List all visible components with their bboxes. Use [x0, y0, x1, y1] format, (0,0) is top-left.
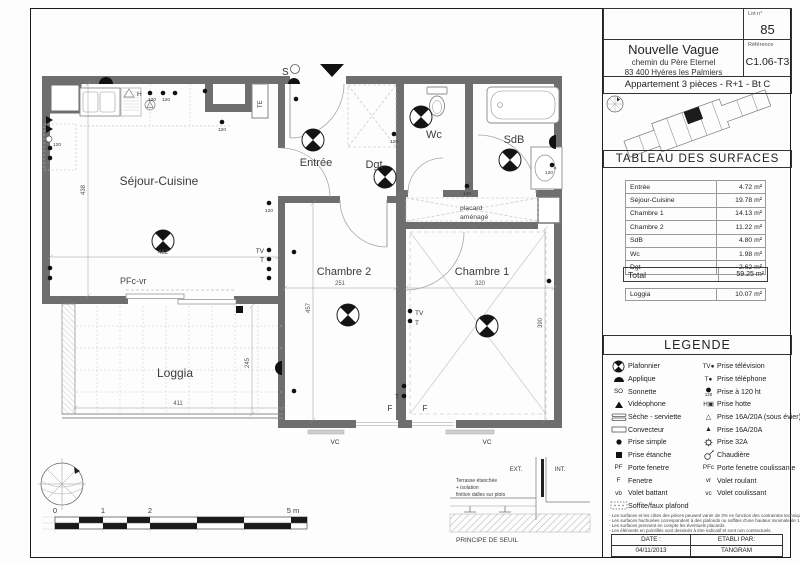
surface-row: Chambre 211.22 m²	[625, 221, 766, 234]
sonnette-icon	[291, 65, 300, 74]
svg-text:finition dalles sur plots: finition dalles sur plots	[456, 492, 506, 498]
compass-icon	[38, 458, 86, 510]
legend-item: Vidéophone	[609, 398, 701, 411]
room-label-dgt: Dgt	[365, 159, 382, 171]
address-line-1: chemin du Père Eternel	[604, 58, 743, 67]
legend-item: vbVolet battant	[609, 487, 701, 500]
date-label: DATE :	[612, 535, 691, 545]
applique-icon	[275, 361, 282, 375]
pfc-vr-label: PFc-vr	[120, 276, 147, 286]
legend-item: 120Prise à 120 ht	[700, 385, 792, 398]
legend-item: ▲Prise 16A/20A	[700, 423, 792, 436]
surface-row: Entrée4.72 m²	[625, 180, 766, 194]
vc-tag: VC	[482, 439, 491, 446]
prise-120-icon: 120	[700, 387, 717, 397]
room-label-sdb: SdB	[504, 134, 525, 146]
prise-simple-icon	[609, 438, 628, 446]
volet-roulant-symbol: vr	[700, 477, 717, 484]
porte-fenetre-symbol: PF	[609, 464, 628, 471]
legend-item: Sèche - serviette	[609, 411, 701, 424]
dimension-lines	[48, 82, 557, 423]
project-box: Nouvelle Vague chemin du Père Eternel 83…	[603, 39, 744, 77]
svg-text:INT.: INT.	[555, 467, 566, 473]
tv-tag: TV	[415, 310, 424, 317]
legend-item: SOSonnette	[609, 385, 701, 398]
scale-bar: 0 1 2 5 m	[42, 506, 307, 533]
lot-number: 85	[744, 22, 791, 37]
legend-item: Soffite/faux plafond	[609, 500, 701, 513]
room-label-loggia: Loggia	[157, 366, 193, 380]
svg-text:120: 120	[545, 170, 553, 176]
te-tag: TE	[258, 100, 264, 108]
room-label-chambre2: Chambre 2	[317, 266, 371, 278]
prise-32a-icon	[700, 438, 717, 447]
t-tag: T	[415, 320, 419, 327]
vc-tag: VC	[330, 439, 339, 446]
sonnette-symbol: SO	[609, 388, 628, 395]
dim-chambre1-h: 390	[538, 317, 544, 328]
volet-battant-symbol: vb	[609, 490, 628, 497]
dim-sejour-h: 438	[81, 184, 87, 195]
hotte-tag: H	[137, 91, 142, 98]
soffite-icon	[609, 501, 628, 510]
legend-item: TV●Prise télévision	[700, 360, 792, 373]
svg-text:1: 1	[101, 506, 105, 515]
legend-item: Plafonnier	[609, 360, 701, 373]
surface-table-title: TABLEAU DES SURFACES	[603, 150, 792, 168]
convecteur-icon	[609, 426, 628, 433]
pfc-symbol: PFc	[700, 464, 717, 471]
dim-sejour-w: 482	[158, 250, 169, 256]
legend-item: PFcPorte fenetre coulissante	[700, 462, 792, 475]
seuil-title: PRINCIPE DE SEUIL	[456, 537, 519, 544]
volet-coulissant-symbol: vc	[700, 490, 717, 497]
svg-text:5 m: 5 m	[287, 506, 300, 515]
legend-item: H▣Prise hotte	[700, 398, 792, 411]
applique-icon	[609, 375, 628, 383]
reference-label: Référence	[748, 42, 773, 48]
drawing-sheet: Séjour-Cuisine Entrée Dgt Wc SdB Chambre…	[0, 0, 800, 566]
surface-row: Chambre 114.13 m²	[625, 208, 766, 221]
plan-tags: S TE TV T TV T T F F VC VC H 120 120 120…	[53, 67, 553, 446]
t-tag: T	[395, 394, 399, 401]
svg-text:+ isolation: + isolation	[456, 485, 479, 491]
f-tag: F	[423, 404, 428, 413]
sonnette-tag: S	[282, 67, 289, 78]
legend-notes: - Les surfaces et les côtes des pièces p…	[609, 513, 789, 533]
seche-serviette-icon	[609, 413, 628, 422]
prise-sous-evier-symbol: △	[700, 413, 717, 421]
svg-text:EXT.: EXT.	[510, 467, 523, 473]
legend-left-column: Plafonnier Applique SOSonnette Vidéophon…	[609, 360, 701, 512]
room-label-chambre1: Chambre 1	[455, 266, 509, 278]
apartment-info: Appartement 3 pièces - R+1 - Bt C	[603, 76, 792, 94]
etabli-label: ETABLI PAR:	[691, 535, 782, 545]
placard-label-2: aménagé	[460, 214, 489, 221]
reference-box: Référence C1.06-T3	[743, 39, 792, 77]
svg-text:0: 0	[53, 506, 57, 515]
legend-right-column: TV●Prise télévision T●Prise téléphone 12…	[700, 360, 792, 500]
svg-text:120: 120	[148, 97, 156, 103]
dim-chambre2-w: 251	[335, 281, 346, 287]
legend-item: △Prise 16A/20A (sous évier)	[700, 411, 792, 424]
legend-item: Prise étanche	[609, 449, 701, 462]
chaudiere-icon	[700, 450, 717, 460]
f-tag: F	[388, 404, 393, 413]
entrance-arrow-icon	[320, 64, 344, 77]
svg-text:120: 120	[162, 97, 170, 103]
plafonnier-icon	[609, 360, 628, 373]
legend-item: Convecteur	[609, 423, 701, 436]
prise-etanche-icon	[609, 451, 628, 459]
room-label-sejour: Séjour-Cuisine	[120, 174, 199, 188]
svg-text:Terrasse étanchée: Terrasse étanchée	[456, 478, 497, 484]
reference-value: C1.06-T3	[744, 56, 791, 68]
legend-title: LEGENDE	[603, 335, 792, 355]
lot-box: Lot n° 85	[743, 8, 792, 40]
surface-row: Wc1.98 m²	[625, 248, 766, 261]
legend-item: PFPorte fenetre	[609, 462, 701, 475]
surface-total-row: Total 59.25 m²	[623, 267, 768, 282]
dim-chambre2-h: 457	[306, 302, 312, 313]
svg-text:120: 120	[265, 208, 273, 214]
svg-text:120: 120	[463, 191, 471, 197]
dim-loggia-h: 245	[245, 357, 251, 368]
surface-table: Entrée4.72 m² Séjour-Cuisine19.78 m² Cha…	[625, 180, 766, 275]
legend-item: T●Prise téléphone	[700, 373, 792, 386]
fenetre-symbol: F	[609, 477, 628, 484]
prise-16a-symbol: ▲	[700, 426, 717, 433]
legend-item: Prise simple	[609, 436, 701, 449]
surface-row: Séjour-Cuisine19.78 m²	[625, 194, 766, 207]
prise-tv-symbol: TV●	[700, 363, 717, 370]
footer-table: DATE : ETABLI PAR: 04/11/2013 TANGRAM	[611, 534, 783, 557]
legend-item: vrVolet roulant	[700, 474, 792, 487]
legend-item: Prise 32A	[700, 436, 792, 449]
project-name: Nouvelle Vague	[604, 42, 743, 57]
etabli-value: TANGRAM	[691, 546, 782, 557]
prise-hotte-symbol: H▣	[700, 401, 717, 408]
svg-text:120: 120	[53, 142, 61, 148]
svg-text:120: 120	[390, 139, 398, 145]
svg-text:120: 120	[218, 127, 226, 133]
t-tag: T	[260, 257, 264, 264]
dim-chambre1-w: 320	[475, 281, 486, 287]
date-value: 04/11/2013	[612, 546, 691, 557]
videophone-icon	[609, 400, 628, 409]
room-label-entree: Entrée	[300, 157, 332, 169]
svg-text:2: 2	[148, 506, 152, 515]
room-label-wc: Wc	[426, 129, 442, 141]
prise-tel-symbol: T●	[700, 376, 717, 383]
prise-etanche-icon	[236, 306, 243, 313]
chaudiere-icon	[46, 136, 52, 142]
dim-loggia-w: 411	[173, 401, 183, 407]
lot-label: Lot n°	[748, 11, 762, 17]
legend-item: Applique	[609, 373, 701, 386]
logo-box	[603, 8, 744, 40]
placard-label-1: placard	[460, 205, 483, 212]
title-column: Lot n° 85 Nouvelle Vague chemin du Père …	[602, 8, 791, 558]
seuil-detail: EXT. INT. Terrasse étanchée + isolation …	[450, 457, 590, 544]
legend-item: Chaudière	[700, 449, 792, 462]
tv-tag: TV	[256, 248, 265, 255]
surface-loggia-row: Loggia 10.07 m²	[625, 288, 766, 301]
legend-item: FFenetre	[609, 474, 701, 487]
surface-row: SdB4.80 m²	[625, 235, 766, 248]
legend-item: vcVolet coulissant	[700, 487, 792, 500]
